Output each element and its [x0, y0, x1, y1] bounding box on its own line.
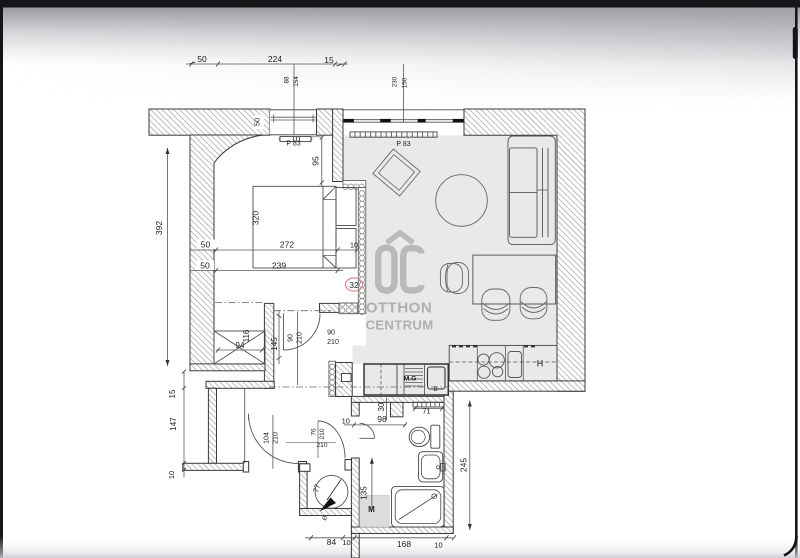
svg-text:50: 50: [253, 118, 262, 126]
svg-text:392: 392: [154, 221, 164, 235]
svg-text:P 83: P 83: [286, 141, 300, 148]
svg-text:50: 50: [201, 240, 211, 250]
svg-text:M.G: M.G: [404, 376, 417, 383]
svg-text:CENTRUM: CENTRUM: [365, 318, 433, 333]
svg-text:168: 168: [397, 539, 411, 549]
svg-text:210: 210: [273, 432, 280, 444]
svg-text:147: 147: [169, 417, 178, 431]
svg-text:210: 210: [319, 428, 326, 439]
svg-text:B: B: [433, 387, 437, 393]
svg-text:50: 50: [200, 261, 210, 271]
svg-text:98: 98: [377, 414, 387, 424]
svg-text:OTTHON: OTTHON: [366, 300, 432, 317]
svg-text:88: 88: [284, 76, 291, 84]
svg-text:10: 10: [350, 241, 358, 250]
svg-text:15: 15: [168, 389, 177, 398]
svg-text:95: 95: [311, 156, 321, 166]
svg-text:224: 224: [268, 54, 282, 64]
svg-text:210: 210: [297, 332, 304, 344]
svg-text:104: 104: [264, 432, 271, 444]
svg-text:90: 90: [288, 334, 295, 342]
svg-text:50: 50: [197, 54, 207, 64]
svg-text:30: 30: [377, 402, 386, 411]
svg-text:210: 210: [327, 339, 339, 346]
svg-text:10: 10: [342, 538, 350, 547]
svg-text:10: 10: [167, 471, 176, 479]
svg-text:154: 154: [293, 76, 300, 87]
svg-text:10: 10: [434, 541, 442, 550]
svg-text:272: 272: [280, 240, 294, 250]
svg-text:84: 84: [327, 537, 337, 547]
svg-text:71: 71: [422, 407, 430, 416]
svg-text:135: 135: [360, 486, 369, 500]
svg-text:10: 10: [342, 417, 350, 426]
svg-text:210: 210: [316, 442, 327, 449]
svg-text:239: 239: [272, 261, 286, 271]
svg-text:145: 145: [270, 337, 279, 351]
svg-text:P 83: P 83: [396, 141, 410, 148]
svg-text:94: 94: [236, 341, 245, 350]
svg-text:230: 230: [392, 76, 399, 87]
svg-text:15: 15: [324, 55, 334, 65]
svg-text:M: M: [368, 505, 375, 514]
svg-text:90: 90: [327, 330, 335, 337]
svg-text:32: 32: [349, 280, 359, 290]
svg-text:H: H: [537, 359, 544, 369]
svg-text:245: 245: [459, 458, 469, 472]
svg-text:320: 320: [251, 211, 261, 225]
svg-text:150: 150: [402, 77, 409, 88]
svg-text:76: 76: [311, 428, 318, 436]
